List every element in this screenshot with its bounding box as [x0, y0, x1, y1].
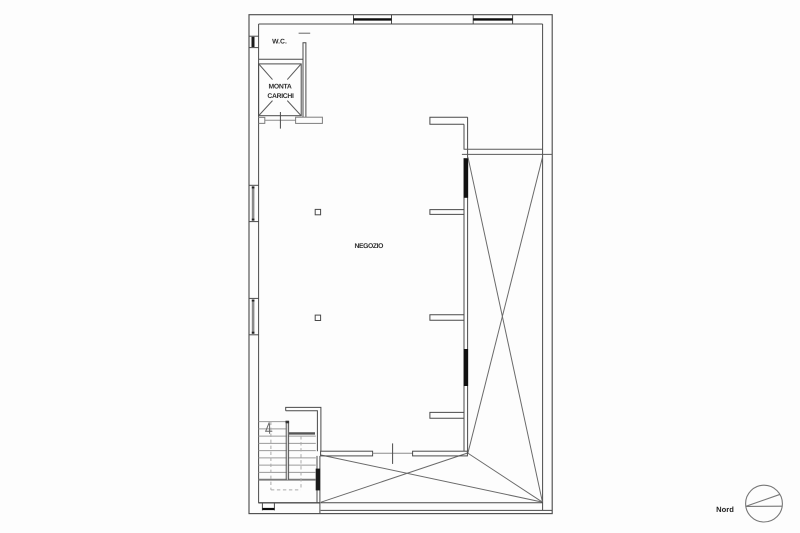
svg-text:Nord: Nord [716, 505, 734, 514]
svg-text:MONTA: MONTA [269, 84, 292, 91]
svg-text:NEGOZIO: NEGOZIO [355, 243, 384, 250]
svg-text:CARICHI: CARICHI [267, 93, 294, 100]
svg-text:W.C.: W.C. [272, 39, 287, 46]
